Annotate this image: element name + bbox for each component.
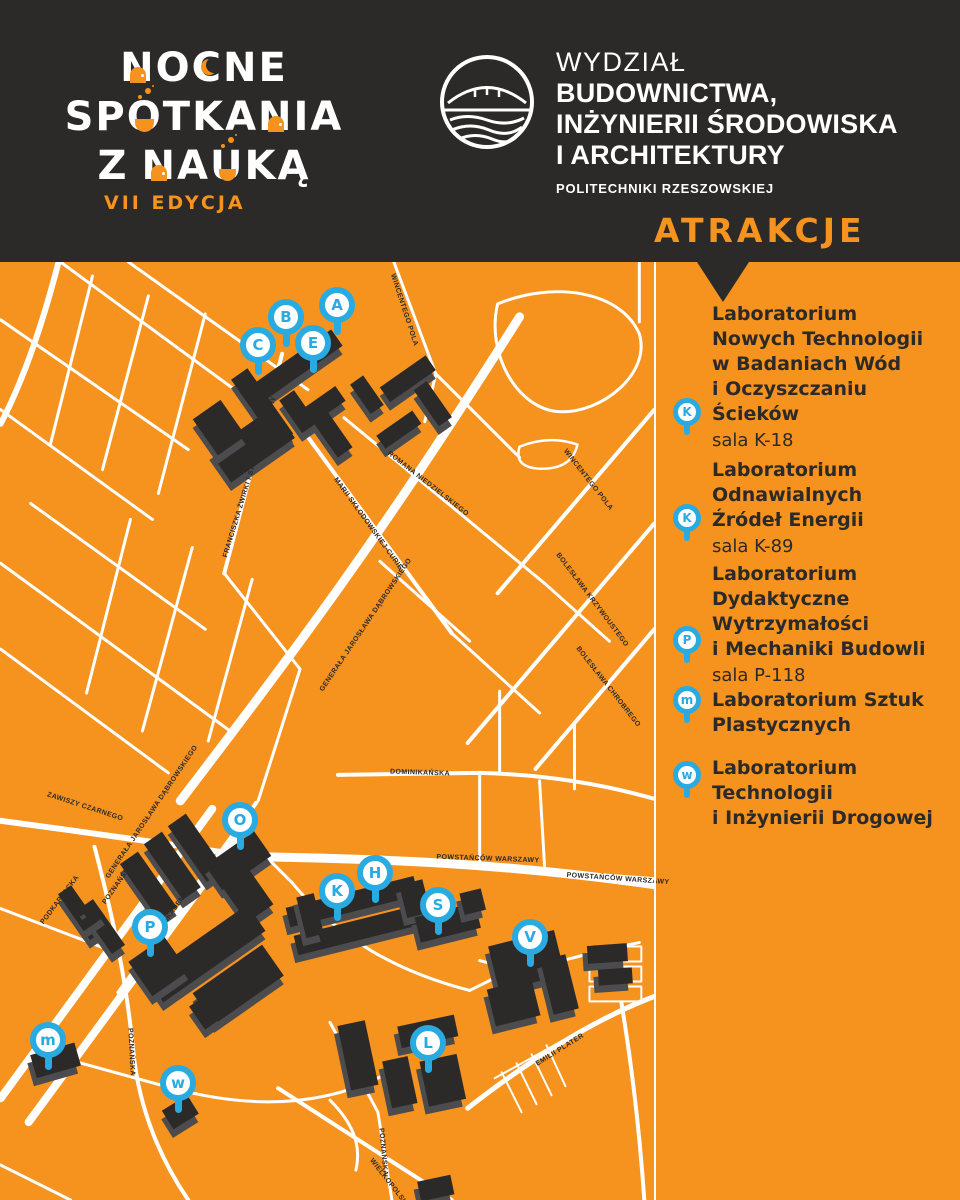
map-marker-L[interactable]: L: [410, 1025, 446, 1073]
header-band: NOCNE SPOTKANIA Z NAUKĄ VII EDYCJA WYDZI…: [0, 0, 960, 262]
marker-letter: w: [160, 1065, 196, 1101]
marker-stem: [435, 921, 442, 935]
wordmark-letter: [129, 142, 142, 191]
map-marker-w[interactable]: w: [160, 1065, 196, 1113]
attraction-item-1: Laboratorium Nowych Technologii w Badani…: [712, 302, 960, 453]
marker-stem: [45, 1056, 52, 1070]
attraction-title-line: Dydaktyczne: [712, 587, 960, 612]
event-logo-wordmark: NOCNE SPOTKANIA Z NAUKĄ: [63, 44, 345, 191]
attractions-title: ATRAKCJE: [654, 211, 866, 250]
wordmark-letter: A: [177, 142, 210, 191]
attraction-title-line: Technologii: [712, 781, 960, 806]
marker-stem: [334, 907, 341, 921]
legend-pin-2: K: [673, 504, 701, 541]
map-marker-P[interactable]: P: [132, 909, 168, 957]
faculty-line: WYDZIAŁ: [556, 47, 898, 78]
legend-pin-stem: [684, 652, 690, 663]
attraction-title-line: Laboratorium: [712, 562, 960, 587]
wordmark-letter: A: [310, 93, 343, 142]
map-marker-S[interactable]: S: [420, 887, 456, 935]
map-marker-O[interactable]: O: [222, 802, 258, 850]
event-map-poster: NOCNE SPOTKANIA Z NAUKĄ VII EDYCJA WYDZI…: [0, 0, 960, 1200]
attraction-item-2: Laboratorium Odnawialnych Źródeł Energii…: [712, 458, 960, 559]
marker-letter: O: [222, 802, 258, 838]
map-marker-E[interactable]: E: [295, 325, 331, 373]
attraction-title-line: i Mechaniki Budowli: [712, 637, 960, 662]
wordmark-letter: U: [210, 142, 244, 191]
map-marker-K[interactable]: K: [319, 873, 355, 921]
legend-pin-stem: [684, 530, 690, 541]
marker-letter: P: [132, 909, 168, 945]
marker-letter: S: [420, 887, 456, 923]
attraction-title-line: i Oczyszczaniu: [712, 377, 960, 402]
marker-letter: A: [319, 287, 355, 323]
wordmark-letter: S: [65, 93, 96, 142]
marker-stem: [527, 953, 534, 967]
marker-stem: [334, 321, 341, 335]
wordmark-letter: K: [192, 93, 225, 142]
legend-pin-stem: [684, 712, 690, 723]
map-marker-m[interactable]: m: [30, 1022, 66, 1070]
wordmark-letter: A: [225, 93, 258, 142]
wordmark-letter: P: [95, 93, 126, 142]
marker-stem: [237, 836, 244, 850]
attraction-title-line: Wytrzymałości: [712, 612, 960, 637]
marker-stem: [147, 943, 154, 957]
wordmark-letter: C: [192, 44, 223, 93]
legend-pin-letter: K: [673, 504, 701, 532]
marker-letter: m: [30, 1022, 66, 1058]
wordmark-letter: Z: [98, 142, 129, 191]
marker-letter: V: [512, 919, 548, 955]
legend-pin-stem: [684, 787, 690, 798]
attraction-room: sala K-18: [712, 429, 960, 453]
wordmark-letter: Ą: [277, 142, 310, 191]
wordmark-letter: N: [258, 93, 293, 142]
faculty-line: BUDOWNICTWA,: [556, 78, 898, 109]
legend-pin-letter: m: [673, 686, 701, 714]
marker-letter: L: [410, 1025, 446, 1061]
sidebar-divider-line: [654, 262, 656, 1200]
faculty-name-block: WYDZIAŁ BUDOWNICTWA, INŻYNIERII ŚRODOWIS…: [556, 47, 898, 204]
marker-stem: [283, 333, 290, 347]
map-marker-H[interactable]: H: [357, 855, 393, 903]
wordmark-letter: K: [244, 142, 277, 191]
wordmark-letter: T: [163, 93, 192, 142]
legend-pin-letter: K: [673, 398, 701, 426]
attraction-title-line: Laboratorium: [712, 458, 960, 483]
attraction-title-line: Źródeł Energii: [712, 508, 960, 533]
wordmark-letter: O: [127, 93, 163, 142]
faculty-line: I ARCHITEKTURY: [556, 140, 898, 171]
marker-stem: [255, 361, 262, 375]
faculty-line: POLITECHNIKI RZESZOWSKIEJ: [556, 173, 898, 204]
marker-stem: [310, 359, 317, 373]
attraction-title-line: i Inżynierii Drogowej: [712, 806, 960, 831]
wordmark-letter: N: [120, 44, 155, 93]
attraction-title-line: Nowych Technologii: [712, 327, 960, 352]
legend-pin-1: K: [673, 398, 701, 435]
legend-pin-3: P: [673, 626, 701, 663]
wordmark-letter: I: [294, 93, 311, 142]
edition-label: VII EDYCJA: [104, 192, 246, 214]
map-markers-layer: ABECOHKSVPmwL: [0, 262, 655, 1200]
wordmark-line-3: Z NAUKĄ: [63, 142, 345, 191]
wordmark-letter: N: [142, 142, 177, 191]
attraction-room: sala K-89: [712, 535, 960, 559]
faculty-bridge-logo: [437, 52, 537, 152]
map-marker-V[interactable]: V: [512, 919, 548, 967]
attractions-pointer-triangle: [697, 262, 749, 302]
attraction-title-line: Ścieków: [712, 402, 960, 427]
attraction-title-line: Odnawialnych: [712, 483, 960, 508]
marker-stem: [372, 889, 379, 903]
marker-stem: [425, 1059, 432, 1073]
legend-pin-letter: P: [673, 626, 701, 654]
wordmark-line-1: NOCNE: [63, 44, 345, 93]
legend-pin-4: m: [673, 686, 701, 723]
marker-letter: K: [319, 873, 355, 909]
wordmark-letter: E: [259, 44, 288, 93]
marker-stem: [175, 1099, 182, 1113]
wordmark-letter: N: [223, 44, 258, 93]
attraction-title-line: Laboratorium: [712, 302, 960, 327]
wordmark-letter: O: [156, 44, 192, 93]
attraction-title-line: w Badaniach Wód: [712, 352, 960, 377]
attraction-item-5: Laboratorium Technologii i Inżynierii Dr…: [712, 756, 960, 831]
wordmark-line-2: SPOTKANIA: [63, 93, 345, 142]
attraction-item-4: Laboratorium Sztuk Plastycznych: [712, 688, 960, 738]
legend-pin-5: w: [673, 761, 701, 798]
legend-pin-letter: w: [673, 761, 701, 789]
attraction-item-3: Laboratorium Dydaktyczne Wytrzymałości i…: [712, 562, 960, 688]
marker-letter: C: [240, 327, 276, 363]
attraction-title-line: Laboratorium: [712, 756, 960, 781]
map-marker-C[interactable]: C: [240, 327, 276, 375]
marker-letter: H: [357, 855, 393, 891]
marker-letter: E: [295, 325, 331, 361]
attraction-title-line: Plastycznych: [712, 713, 960, 738]
attraction-room: sala P-118: [712, 664, 960, 688]
legend-pin-stem: [684, 424, 690, 435]
attraction-title-line: Laboratorium Sztuk: [712, 688, 960, 713]
faculty-line: INŻYNIERII ŚRODOWISKA: [556, 109, 898, 140]
